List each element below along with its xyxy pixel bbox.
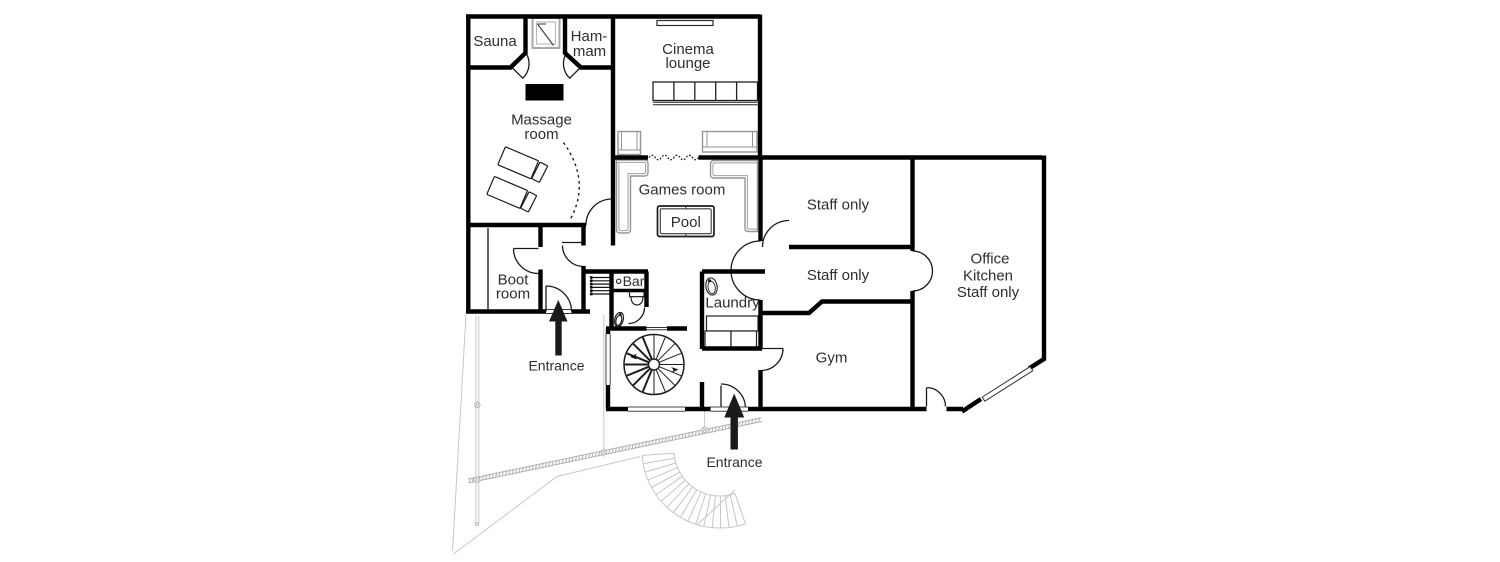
svg-text:Staff only: Staff only [957,284,1020,301]
svg-text:Sauna: Sauna [473,33,517,50]
svg-text:mam: mam [573,43,606,60]
svg-text:Kitchen: Kitchen [963,267,1013,284]
svg-text:Entrance: Entrance [706,454,762,470]
svg-text:room: room [524,126,558,143]
svg-text:Bar: Bar [623,273,645,289]
svg-text:Staff only: Staff only [807,267,870,284]
svg-text:Games room: Games room [639,182,726,199]
svg-text:Gym: Gym [816,350,848,367]
svg-text:Entrance: Entrance [528,358,584,374]
svg-text:Pool: Pool [671,214,701,231]
svg-text:Laundry: Laundry [705,295,760,312]
svg-text:Office: Office [971,251,1010,268]
svg-text:lounge: lounge [665,55,710,72]
svg-text:Staff only: Staff only [807,197,870,214]
svg-text:room: room [496,286,530,303]
